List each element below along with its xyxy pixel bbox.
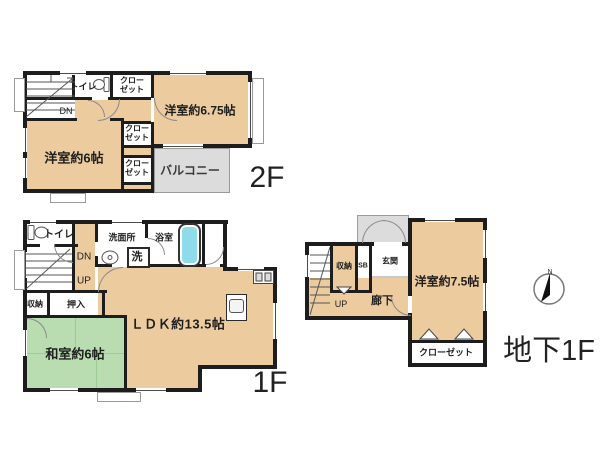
japanese-floorplan: 洋室約6.75帖 洋室約6帖 バルコニー トイレ クロー ゼット クロー ゼット…	[0, 0, 600, 449]
ldk-label: ＬＤＫ約13.5帖	[131, 314, 226, 333]
bay-window	[14, 78, 25, 112]
wall-segment	[23, 290, 107, 293]
wall-segment	[198, 365, 202, 392]
washroom-label: 洗面所	[108, 231, 135, 244]
tatami-room-label: 和室約6帖	[45, 344, 104, 363]
closet-line2: ゼット	[120, 85, 144, 94]
window	[305, 255, 309, 277]
room-label-2f-west-675: 洋室約6.75帖	[164, 102, 235, 119]
toilet-label-2f: トイレ	[69, 80, 96, 93]
compass-icon: N	[529, 266, 569, 308]
stairs-dn-label-2f: DN	[60, 106, 73, 116]
sink-icon	[101, 250, 119, 265]
floor-1f-plan: トイレ DN UP 洗面所 洗 浴室 収納 押入 和室約6帖 ＬＤＫ約13.5帖…	[0, 210, 300, 449]
floor-b1-plan: 収納 SB 玄関 UP 廊下 洋室約7.5帖 クローゼット 地下1F N	[300, 0, 600, 449]
window	[112, 220, 142, 224]
bath-label: 浴室	[155, 231, 173, 244]
door-opening	[95, 242, 98, 256]
wall-segment	[408, 340, 487, 343]
window	[23, 158, 27, 178]
window	[163, 144, 203, 148]
folding-door-mark	[454, 328, 474, 340]
closet-line2: ゼット	[125, 168, 149, 177]
ldk-fill-b	[127, 365, 198, 388]
shoebox-label: SB	[358, 263, 368, 270]
wall-segment	[121, 182, 154, 185]
balcony-label: バルコニー	[160, 162, 220, 179]
wall-segment	[23, 315, 127, 318]
floor-2f-plan: 洋室約6.75帖 洋室約6帖 バルコニー トイレ クロー ゼット クロー ゼット…	[0, 0, 300, 210]
wall-segment	[47, 293, 50, 315]
closet-label-b1: クローゼット	[419, 346, 473, 359]
closet-line1: クロー	[125, 124, 149, 133]
entrance-label: 玄関	[382, 256, 398, 267]
wall-segment	[23, 189, 154, 193]
room-label-2f-west-6: 洋室約6帖	[44, 148, 103, 167]
folding-door-mark	[419, 328, 439, 340]
stairs-up-label-b1: UP	[335, 299, 348, 309]
exterior-step	[97, 392, 141, 402]
closet-label-2f-top: クロー ゼット	[120, 76, 144, 94]
stove-icon	[253, 270, 274, 284]
washer-label: 洗	[132, 248, 143, 264]
wall-segment	[330, 246, 333, 293]
hallway-label: 廊下	[371, 292, 393, 308]
stairs-up-label-1f: UP	[77, 276, 91, 287]
wall-segment	[305, 316, 412, 320]
wall-segment	[202, 220, 205, 267]
wall-segment	[121, 145, 154, 148]
wall-segment	[408, 363, 487, 367]
oshiire-label: 押入	[67, 298, 85, 311]
stairs-dn-label-1f: DN	[77, 252, 91, 263]
window	[483, 230, 487, 258]
closet-line1: クロー	[125, 159, 149, 168]
floor-label-2f: 2F	[249, 161, 284, 195]
window	[23, 128, 27, 152]
floor-label-1f: 1F	[252, 366, 287, 400]
wall-segment	[23, 118, 77, 121]
entrance-step-line	[372, 276, 408, 278]
folding-door-mark	[336, 286, 352, 295]
window	[170, 71, 206, 75]
compass-north-label: N	[547, 269, 552, 276]
storage-label-b1: 収納	[336, 261, 352, 272]
closet-label-2f-low: クロー ゼット	[125, 159, 149, 177]
wall-segment	[369, 246, 372, 293]
exterior-step	[50, 193, 86, 203]
closet-line2: ゼット	[125, 133, 149, 142]
bay-window	[252, 78, 264, 144]
wall-segment	[110, 71, 113, 100]
wall-segment	[124, 315, 127, 392]
toilet-label-1f: トイレ	[44, 226, 74, 241]
wall-segment	[355, 246, 358, 293]
window	[425, 218, 455, 222]
kitchen-sink-icon	[229, 299, 244, 313]
wall-segment	[121, 155, 154, 158]
wall-segment	[102, 290, 105, 318]
room-label-b1-75: 洋室約7.5帖	[415, 273, 480, 290]
wall-segment	[305, 242, 309, 320]
bay-window	[14, 250, 25, 290]
bathtub-icon	[178, 223, 201, 267]
floor-label-b1: 地下1F	[503, 327, 595, 369]
window	[50, 388, 78, 392]
storage-label-1f: 収納	[27, 299, 43, 310]
window	[273, 303, 277, 339]
kitchen-counter	[226, 294, 247, 321]
closet-line1: クロー	[120, 76, 144, 85]
closet-label-2f-mid: クロー ゼット	[125, 124, 149, 142]
stairs-b1-icon	[310, 247, 330, 315]
window	[483, 283, 487, 311]
hall-2f-strip	[124, 148, 151, 155]
wall-segment	[408, 218, 412, 367]
